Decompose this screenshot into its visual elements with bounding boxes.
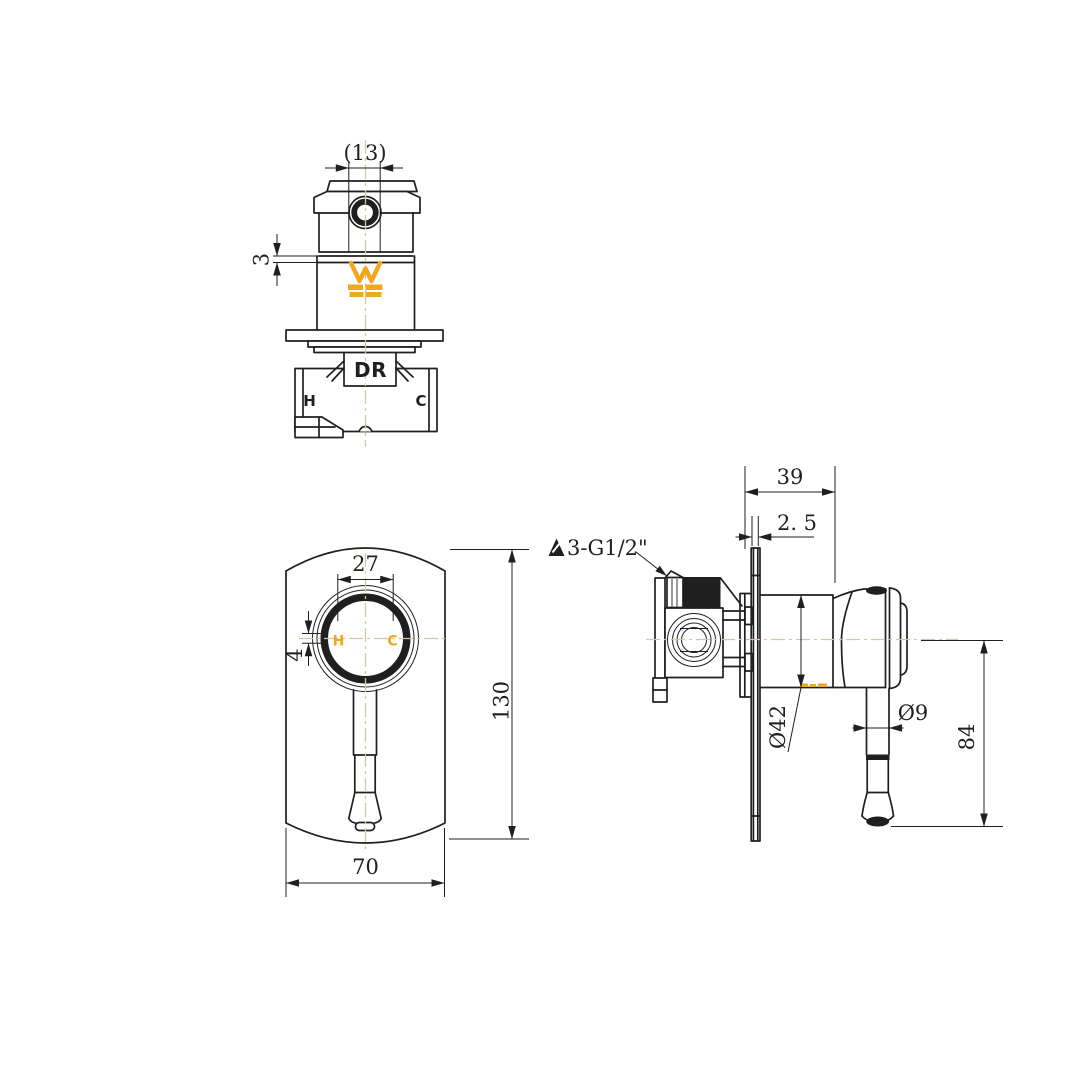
dim-handle-length-text: 84 <box>955 724 979 751</box>
drawing-canvas: (13) 3 DR H C 27 <box>0 0 1080 1080</box>
dim-handle-diameter: Ø9 <box>853 701 929 732</box>
front-cold-label: C <box>387 634 397 650</box>
dim-groove-height-text: 3 <box>250 253 274 266</box>
dim-plate-height: 130 <box>449 550 529 840</box>
dim-plate-width-text: 70 <box>352 855 379 879</box>
dim-hole-spacing-text: (13) <box>343 141 386 165</box>
thread-spec-label: 3-G1/2" <box>567 536 648 560</box>
dim-escutcheon-diameter-text: Ø42 <box>766 705 790 749</box>
port-cold-label: C <box>415 392 426 410</box>
dim-handle-diameter-text: Ø9 <box>898 701 929 725</box>
side-view: 39 2. 5 3-G1/2" Ø42 Ø9 <box>549 465 1004 841</box>
top-view: (13) 3 DR H C <box>250 140 444 447</box>
dim-groove-height: 3 <box>250 234 342 286</box>
port-hot-label: H <box>303 392 316 410</box>
cartridge-label: DR <box>354 358 387 382</box>
thread-spec-note: 3-G1/2" <box>549 536 667 576</box>
dim-valve-depth-text: 39 <box>777 465 804 489</box>
dim-plate-height-text: 130 <box>490 681 514 721</box>
handle-pin-icon <box>866 586 887 594</box>
dim-trim-ring-width-text: 27 <box>352 552 379 576</box>
front-view: 27 4 130 70 H C <box>283 548 529 897</box>
wall-plate-side <box>751 548 760 841</box>
dim-plate-thickness: 2. 5 <box>736 511 818 546</box>
technical-drawing: (13) 3 DR H C 27 <box>0 0 1080 1080</box>
front-hot-label: H <box>333 634 345 650</box>
dim-handle-offset-text: 4 <box>283 648 307 661</box>
dim-plate-thickness-text: 2. 5 <box>777 511 817 535</box>
valve-body-side <box>653 571 752 702</box>
dim-handle-length: 84 <box>891 641 1003 827</box>
lever-handle-side <box>862 689 894 827</box>
escutcheon-side <box>760 586 907 688</box>
brand-logo-small-icon <box>800 684 827 688</box>
